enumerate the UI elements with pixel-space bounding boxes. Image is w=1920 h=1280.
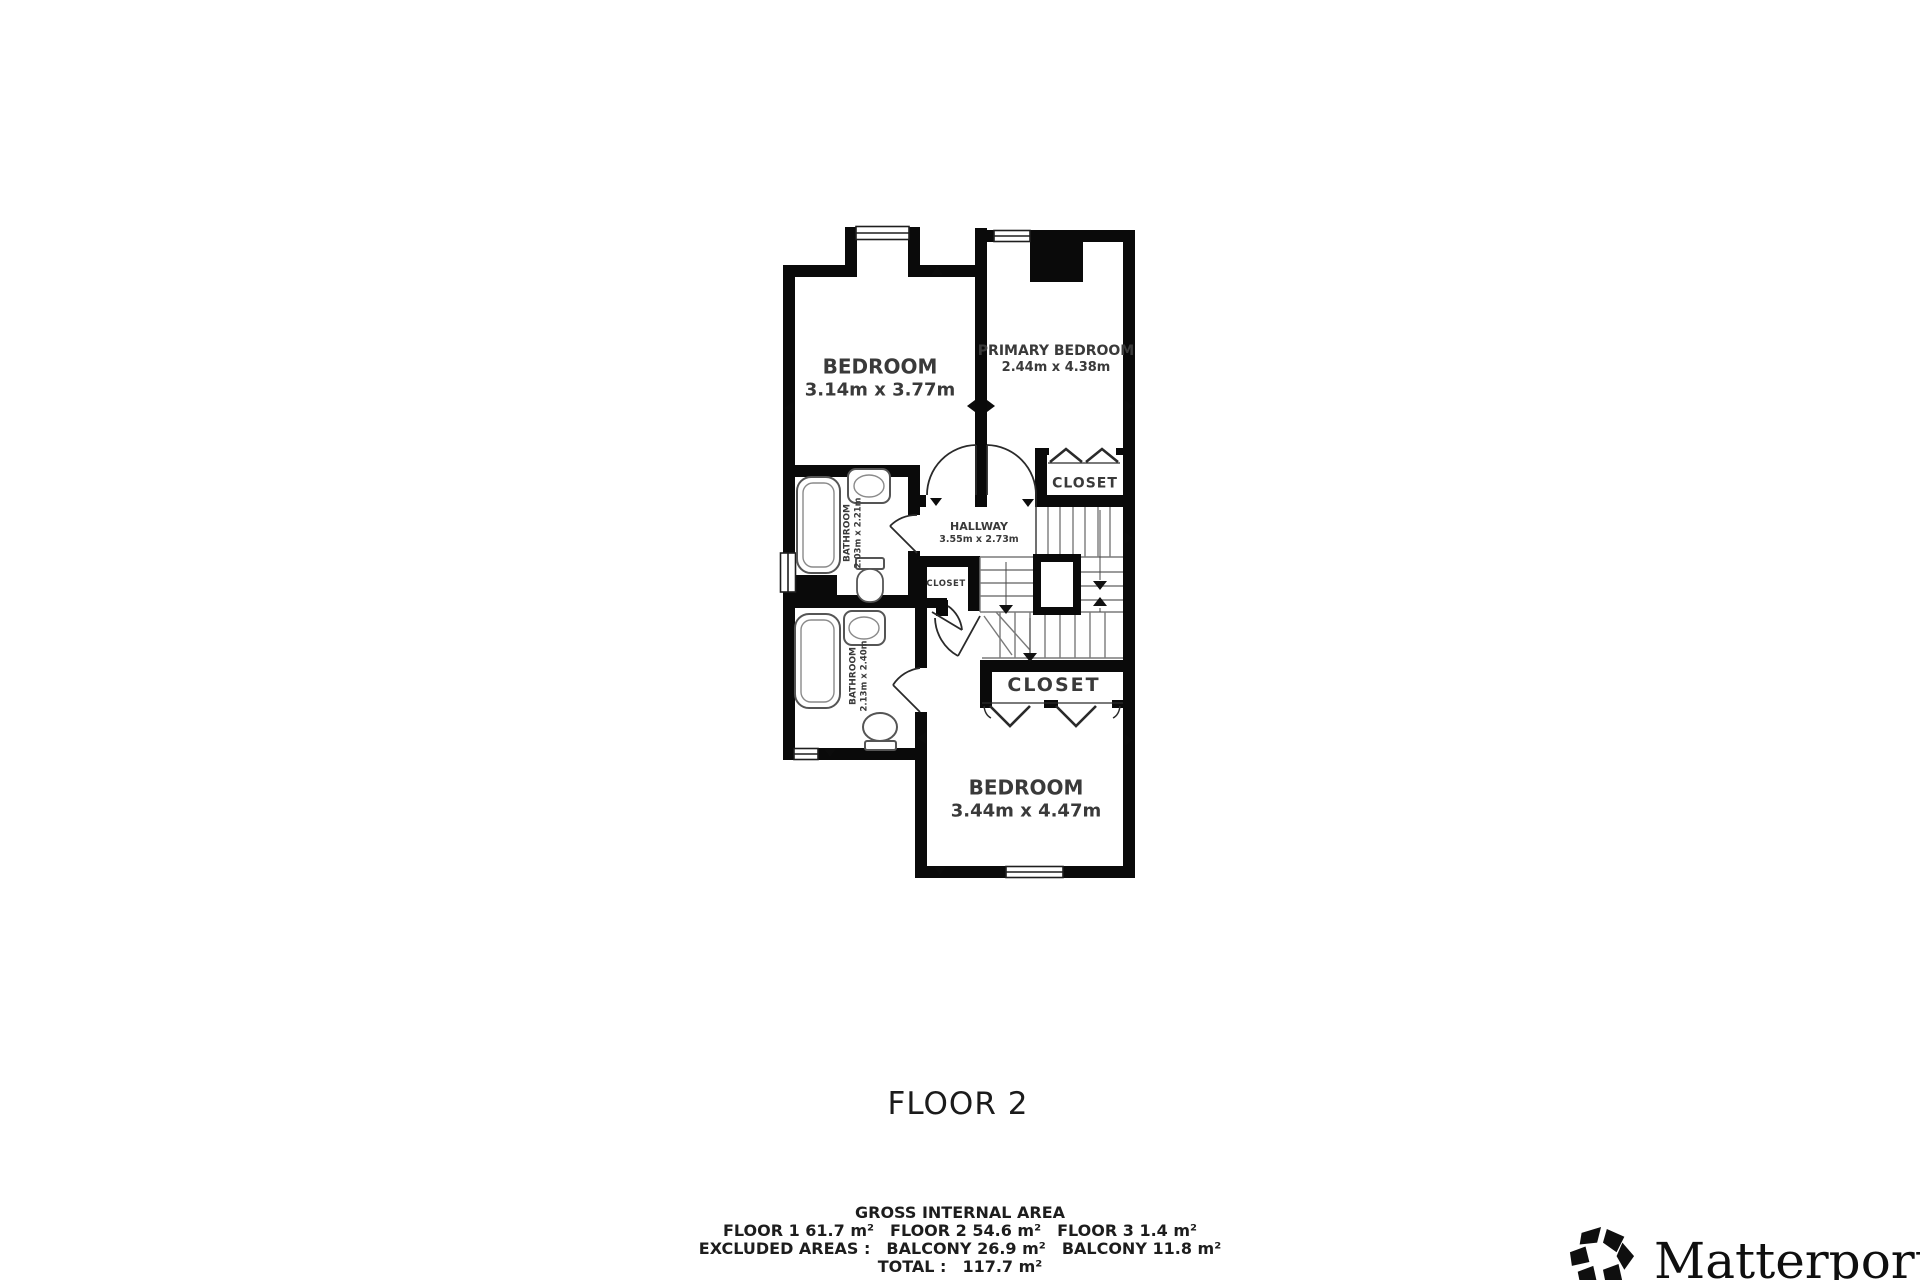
closet-label-top-right: CLOSET — [1052, 476, 1118, 493]
door-primary-bedroom — [987, 445, 1036, 495]
balcony2-area: BALCONY 11.8 m² — [1062, 1240, 1221, 1258]
window-bottom-bedroom — [1006, 867, 1063, 878]
window-bathroom-lower — [794, 749, 818, 760]
room-dims: 3.14m x 3.77m — [805, 379, 955, 400]
room-name: BEDROOM — [951, 777, 1101, 801]
floor-title: FLOOR 2 — [888, 1086, 1029, 1122]
window-primary-bedroom — [994, 231, 1030, 242]
room-dims: 2.44m x 4.38m — [978, 360, 1134, 375]
bathtub-upper-icon — [797, 477, 840, 573]
room-name: HALLWAY — [939, 521, 1018, 534]
summary-heading-line: GROSS INTERNAL AREA — [0, 1204, 1920, 1222]
floor2-area: FLOOR 2 54.6 m² — [890, 1222, 1041, 1240]
stair-core — [1037, 558, 1077, 611]
door-bathroom-upper — [890, 515, 917, 553]
total-label: TOTAL : — [878, 1258, 947, 1276]
gross-internal-area-heading: GROSS INTERNAL AREA — [855, 1204, 1065, 1222]
room-label-hallway: HALLWAY 3.55m x 2.73m — [939, 521, 1018, 545]
matterport-branding: Matterport® — [1568, 1226, 1920, 1280]
room-dims: 2.13m x 2.40m — [859, 640, 869, 711]
room-dims: 3.44m x 4.47m — [951, 800, 1101, 821]
floor1-area: FLOOR 1 61.7 m² — [723, 1222, 874, 1240]
room-label-bathroom-lower: BATHROOM 2.13m x 2.40m — [849, 640, 870, 711]
room-name: BATHROOM — [843, 497, 854, 568]
matterport-logo-text: Matterport® — [1654, 1236, 1920, 1280]
closet-label-small: CLOSET — [926, 579, 965, 589]
total-value: 117.7 m² — [962, 1258, 1042, 1276]
room-label-primary-bedroom: PRIMARY BEDROOM 2.44m x 4.38m — [978, 343, 1134, 375]
brand-name: Matterport — [1654, 1232, 1920, 1280]
bathtub-lower-icon — [795, 614, 840, 708]
floor3-area: FLOOR 3 1.4 m² — [1057, 1222, 1197, 1240]
balcony1-area: BALCONY 26.9 m² — [886, 1240, 1045, 1258]
room-dims: 3.55m x 2.73m — [939, 534, 1018, 545]
closet-label-bottom: CLOSET — [1007, 674, 1100, 696]
room-label-bedroom-bottom: BEDROOM 3.44m x 4.47m — [951, 777, 1101, 822]
window-left-wall — [781, 553, 796, 592]
room-label-bathroom-upper: BATHROOM 2.03m x 2.21m — [843, 497, 864, 568]
room-name: BEDROOM — [805, 356, 955, 380]
door-bedroom-bottom — [935, 616, 980, 656]
floorplan-page: BEDROOM 3.14m x 3.77m PRIMARY BEDROOM 2.… — [0, 0, 1920, 1280]
door-bathroom-lower — [893, 668, 920, 712]
door-bedroom-top — [927, 445, 976, 495]
solid-wall-block — [1030, 230, 1083, 282]
matterport-logo-icon — [1568, 1226, 1636, 1280]
window-top-bedroom — [856, 227, 909, 240]
room-name: BATHROOM — [849, 640, 860, 711]
room-label-bedroom-top: BEDROOM 3.14m x 3.77m — [805, 356, 955, 401]
room-dims: 2.03m x 2.21m — [853, 497, 863, 568]
excluded-areas-label: EXCLUDED AREAS : — [699, 1240, 871, 1258]
bifold-closet-top-right — [1048, 449, 1120, 463]
room-name: PRIMARY BEDROOM — [978, 343, 1134, 360]
toilet-lower-icon — [863, 713, 897, 750]
